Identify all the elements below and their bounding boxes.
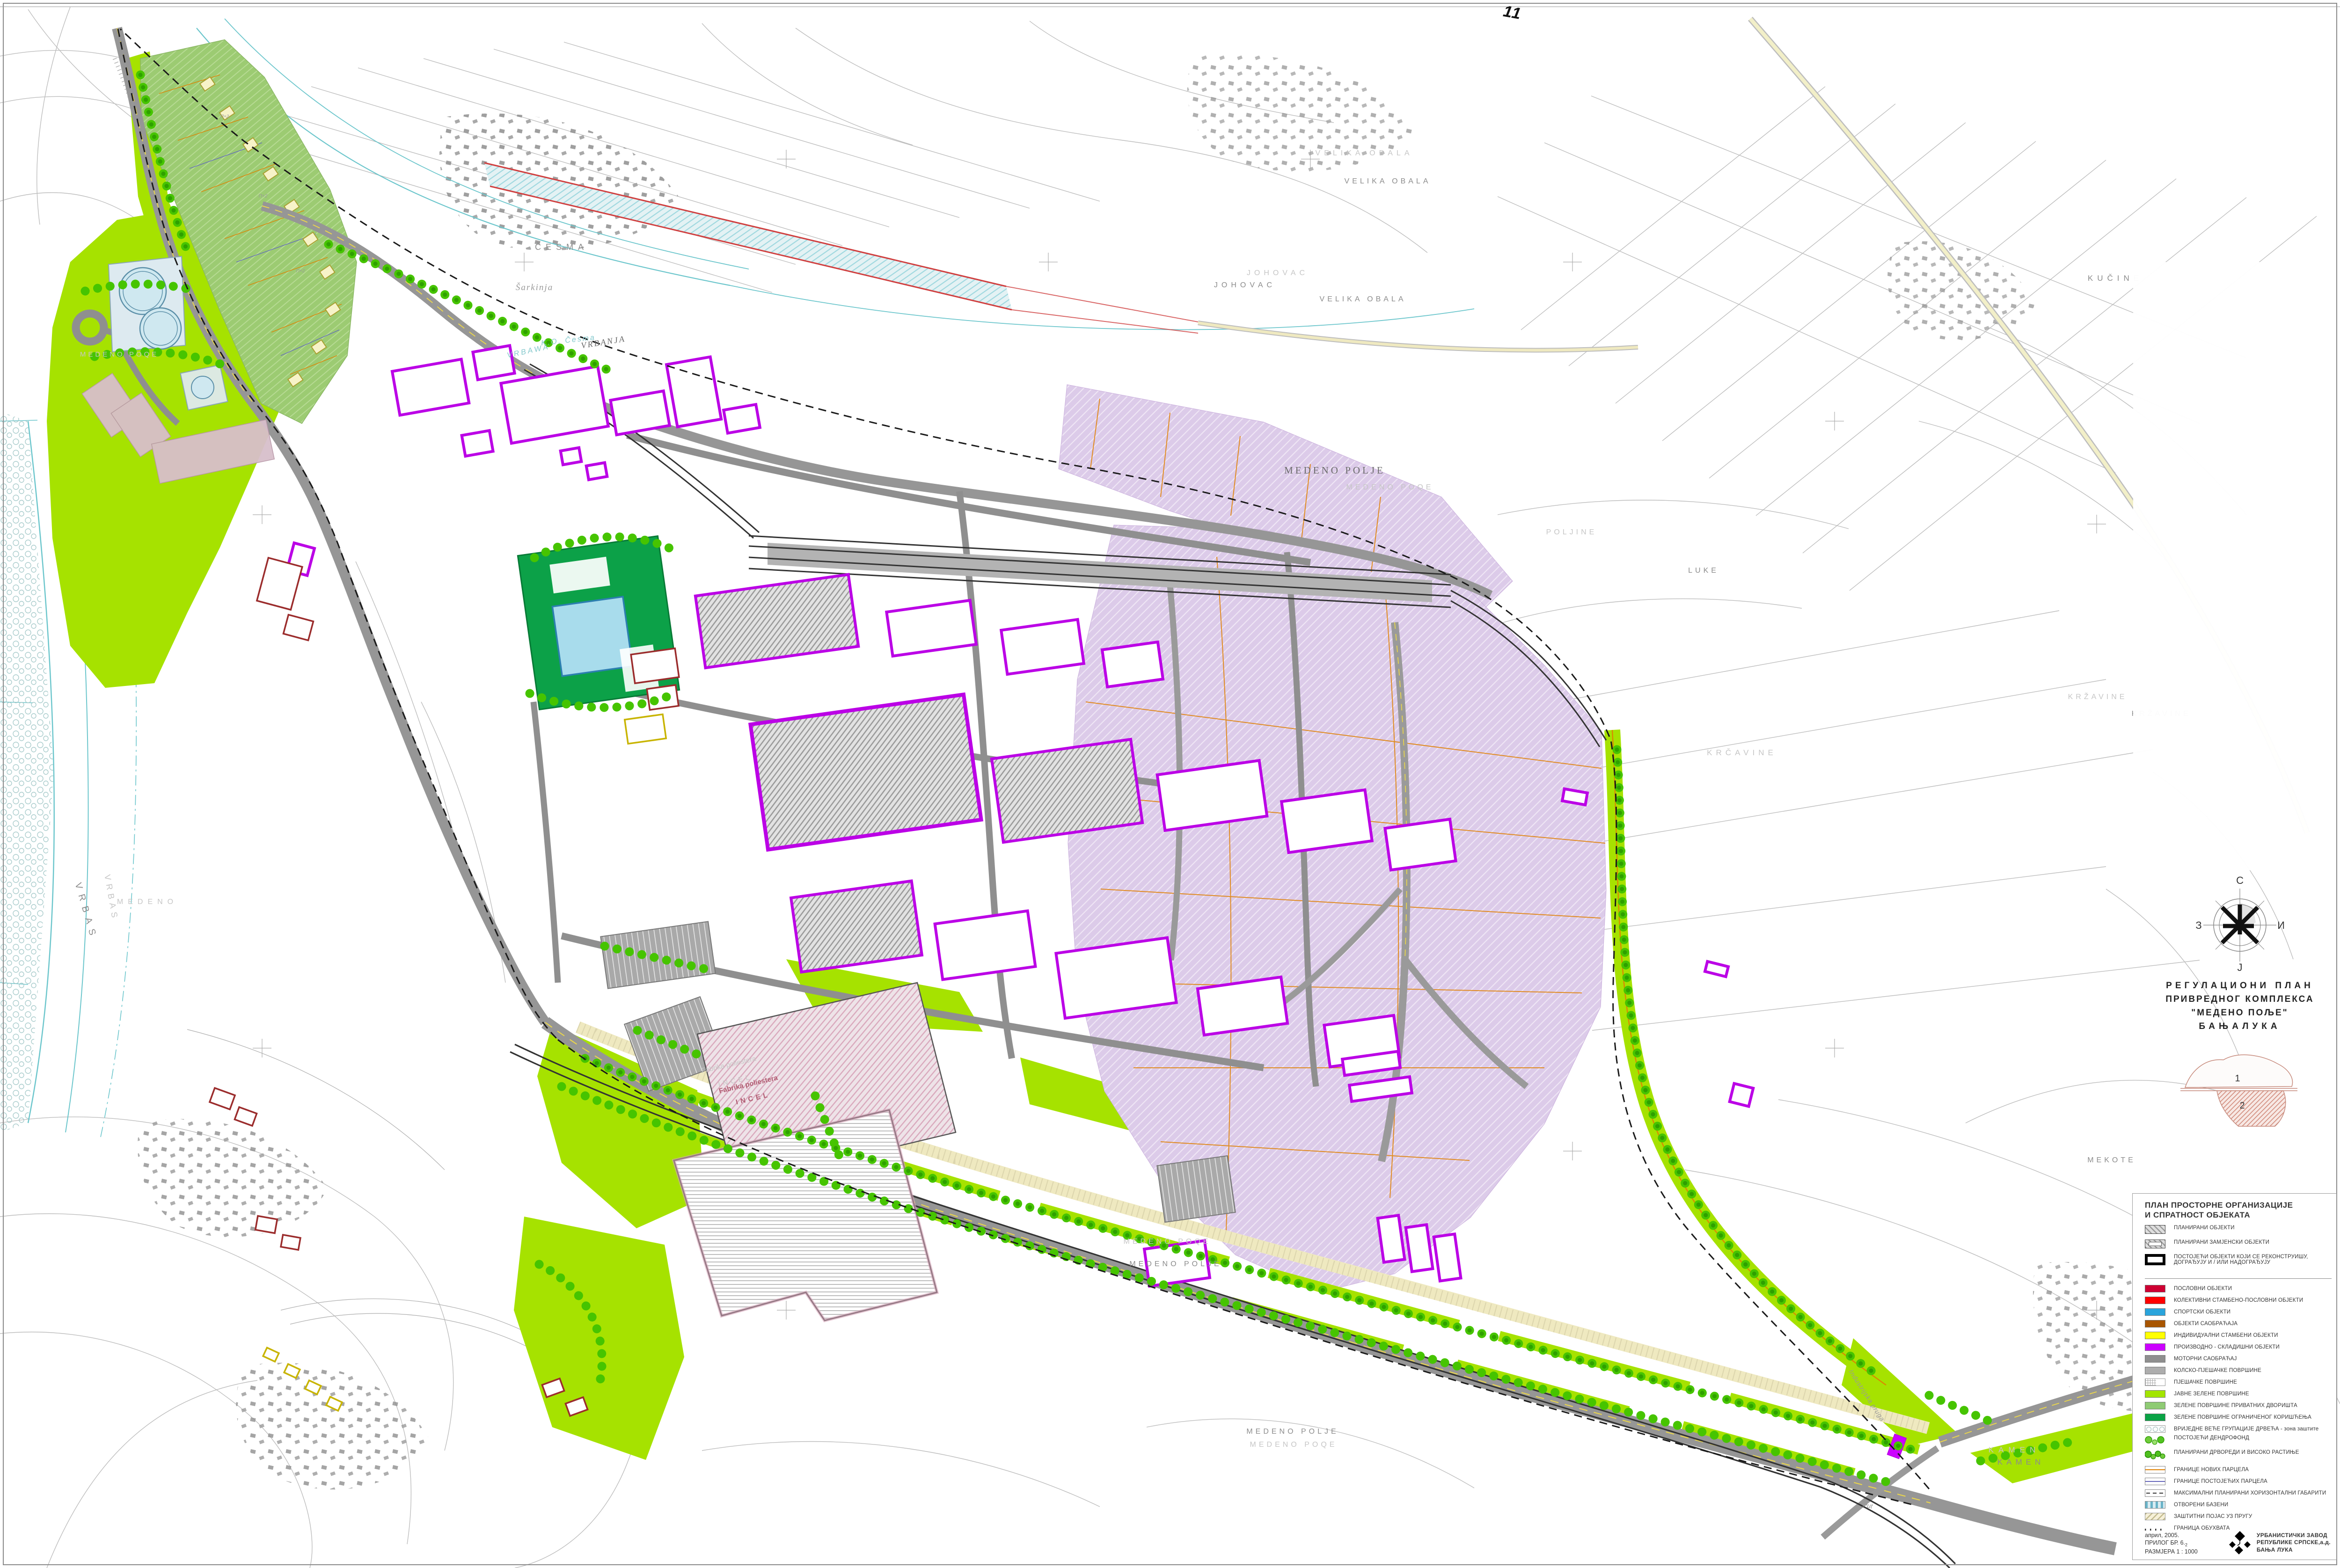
publisher-line3: БАЊА ЛУКА xyxy=(2257,1546,2331,1554)
svg-text:VRBAS: VRBAS xyxy=(73,882,99,942)
plan-title-line3: "МЕДЕНО ПОЉЕ" xyxy=(2143,1008,2336,1018)
svg-text:Šarkinja: Šarkinja xyxy=(516,282,553,292)
compass-east: И xyxy=(2277,919,2285,931)
key-map: 1 2 xyxy=(2177,1043,2303,1130)
east-green-band xyxy=(1612,730,1886,1385)
swatch-reconstructed-buildings xyxy=(2145,1254,2165,1265)
map-sheet: VRBAS VRBAS MEDENO ČESMA Šarkinja K.O. Č… xyxy=(0,0,2340,1568)
swatch-railway-protection xyxy=(2145,1513,2165,1520)
svg-text:KAMEN: KAMEN xyxy=(1989,1445,2040,1454)
swatch-sport xyxy=(2145,1308,2165,1316)
legend-footer: април, 2005. ПРИЛОГ БР. 6.2 РАЗМЈЕРА 1 :… xyxy=(2145,1532,2198,1556)
swatch-tree-groups xyxy=(2145,1425,2165,1433)
compass-west: З xyxy=(2195,919,2201,931)
svg-text:MEDENO POLJE: MEDENO POLJE xyxy=(1284,465,1385,476)
floodplain-grove-zone xyxy=(0,412,54,1132)
plan-title-line4: БАЊАЛУКА xyxy=(2143,1021,2336,1032)
svg-text:Put: Put xyxy=(1862,1501,1874,1510)
svg-text:MEDENO POLJE: MEDENO POLJE xyxy=(1246,1428,1338,1436)
swatch-existing-parcel-borders xyxy=(2145,1478,2165,1485)
legend-heading: ПЛАН ПРОСТОРНЕ ОРГАНИЗАЦИЈЕ И СПРАТНОСТ … xyxy=(2145,1200,2336,1220)
swatch-planned-buildings xyxy=(2145,1225,2165,1234)
swatch-replacement-buildings xyxy=(2145,1240,2165,1248)
legend-panel: ПЛАН ПРОСТОРНЕ ОРГАНИЗАЦИЈЕ И СПРАТНОСТ … xyxy=(2132,1193,2337,1560)
key-map-sheet1: 1 xyxy=(2235,1073,2240,1084)
svg-text:MEDENO POQE: MEDENO POQE xyxy=(1250,1441,1338,1449)
swatch-traffic-buildings xyxy=(2145,1320,2165,1327)
svg-text:П+2: П+2 xyxy=(259,194,268,199)
svg-text:VELIKA OBALA: VELIKA OBALA xyxy=(1345,177,1431,185)
publisher-line2: РЕПУБЛИКЕ СРПСКЕ,а.д. xyxy=(2257,1539,2331,1546)
swatch-production-storage xyxy=(2145,1343,2165,1351)
svg-text:JOHOVAC: JOHOVAC xyxy=(1247,269,1309,277)
svg-text:MEDENO POQE: MEDENO POQE xyxy=(1124,1238,1211,1246)
swatch-motor-traffic xyxy=(2145,1355,2165,1363)
swatch-planned-trees-icon xyxy=(2145,1450,2165,1457)
svg-text:MEKOTE: MEKOTE xyxy=(2087,1156,2136,1164)
swatch-new-parcel-borders xyxy=(2145,1466,2165,1473)
sheet-number: 11 xyxy=(1502,2,1523,23)
key-map-sheet2: 2 xyxy=(2239,1101,2245,1111)
svg-text:LUKE: LUKE xyxy=(1688,567,1719,575)
sport-complex-block xyxy=(518,536,679,710)
compass-rose: С И З J xyxy=(2188,876,2291,974)
swatch-plan-boundary xyxy=(2145,1529,2165,1531)
publisher-line1: УРБАНИСТИЧКИ ЗАВОД xyxy=(2257,1532,2331,1539)
swatch-existing-trees-icon xyxy=(2145,1435,2165,1443)
publisher-block: УРБАНИСТИЧКИ ЗАВОД РЕПУБЛИКЕ СРПСКЕ,а.д.… xyxy=(2229,1531,2331,1555)
swatch-max-horizontal-extent xyxy=(2145,1489,2165,1497)
blank-margin xyxy=(2133,262,2338,870)
title-block: С И З J РЕГУЛАЦИОНИ ПЛАН ПРИВРЕДНОГ КОМП… xyxy=(2143,876,2336,1130)
map-canvas: VRBAS VRBAS MEDENO ČESMA Šarkinja K.O. Č… xyxy=(0,0,2340,1568)
svg-text:VELIKA OBALA: VELIKA OBALA xyxy=(1320,295,1406,303)
swatch-open-pools xyxy=(2145,1501,2165,1509)
plan-date: април, 2005. xyxy=(2145,1532,2198,1539)
svg-text:JOHOVAC: JOHOVAC xyxy=(1214,281,1276,289)
svg-text:MEDENO POLJE: MEDENO POLJE xyxy=(1129,1260,1221,1268)
compass-north: С xyxy=(2236,876,2244,886)
svg-text:П+2: П+2 xyxy=(296,269,305,274)
svg-text:MEDENO POQE: MEDENO POQE xyxy=(1346,483,1434,491)
swatch-business xyxy=(2145,1285,2165,1292)
swatch-private-green xyxy=(2145,1402,2165,1409)
legend-divider xyxy=(2145,1278,2332,1279)
svg-text:KRČAVINE: KRČAVINE xyxy=(1707,748,1777,757)
attachment-number: ПРИЛОГ БР. 6.2 xyxy=(2145,1539,2198,1548)
swatch-pedestrian xyxy=(2145,1378,2165,1386)
swatch-vehicle-pedestrian xyxy=(2145,1367,2165,1374)
plan-scale: РАЗМЈЕРА 1 : 1000 xyxy=(2145,1548,2198,1556)
svg-text:MEDENO POQE: MEDENO POQE xyxy=(80,350,159,358)
svg-text:KRŽAVINE: KRŽAVINE xyxy=(2068,692,2128,701)
svg-text:VRBAWA: VRBAWA xyxy=(506,343,550,360)
svg-text:POLJINE: POLJINE xyxy=(1546,528,1597,536)
svg-text:VELIKA OBALA: VELIKA OBALA xyxy=(1316,149,1413,157)
plan-title-line2: ПРИВРЕДНОГ КОМПЛЕКСА xyxy=(2143,994,2336,1005)
svg-text:MEDENO: MEDENO xyxy=(117,898,178,906)
svg-text:П+2: П+2 xyxy=(220,114,229,119)
swatch-restricted-green xyxy=(2145,1414,2165,1421)
compass-south: J xyxy=(2238,962,2243,973)
urbanisticki-zavod-logo xyxy=(2229,1531,2251,1555)
swatch-individual-residential xyxy=(2145,1332,2165,1339)
svg-text:KAMEN: KAMEN xyxy=(1997,1458,2044,1466)
svg-text:ČESMA: ČESMA xyxy=(535,242,588,252)
swatch-public-green xyxy=(2145,1390,2165,1398)
plan-title-line1: РЕГУЛАЦИОНИ ПЛАН xyxy=(2143,981,2336,991)
swatch-collective-residential xyxy=(2145,1297,2165,1304)
